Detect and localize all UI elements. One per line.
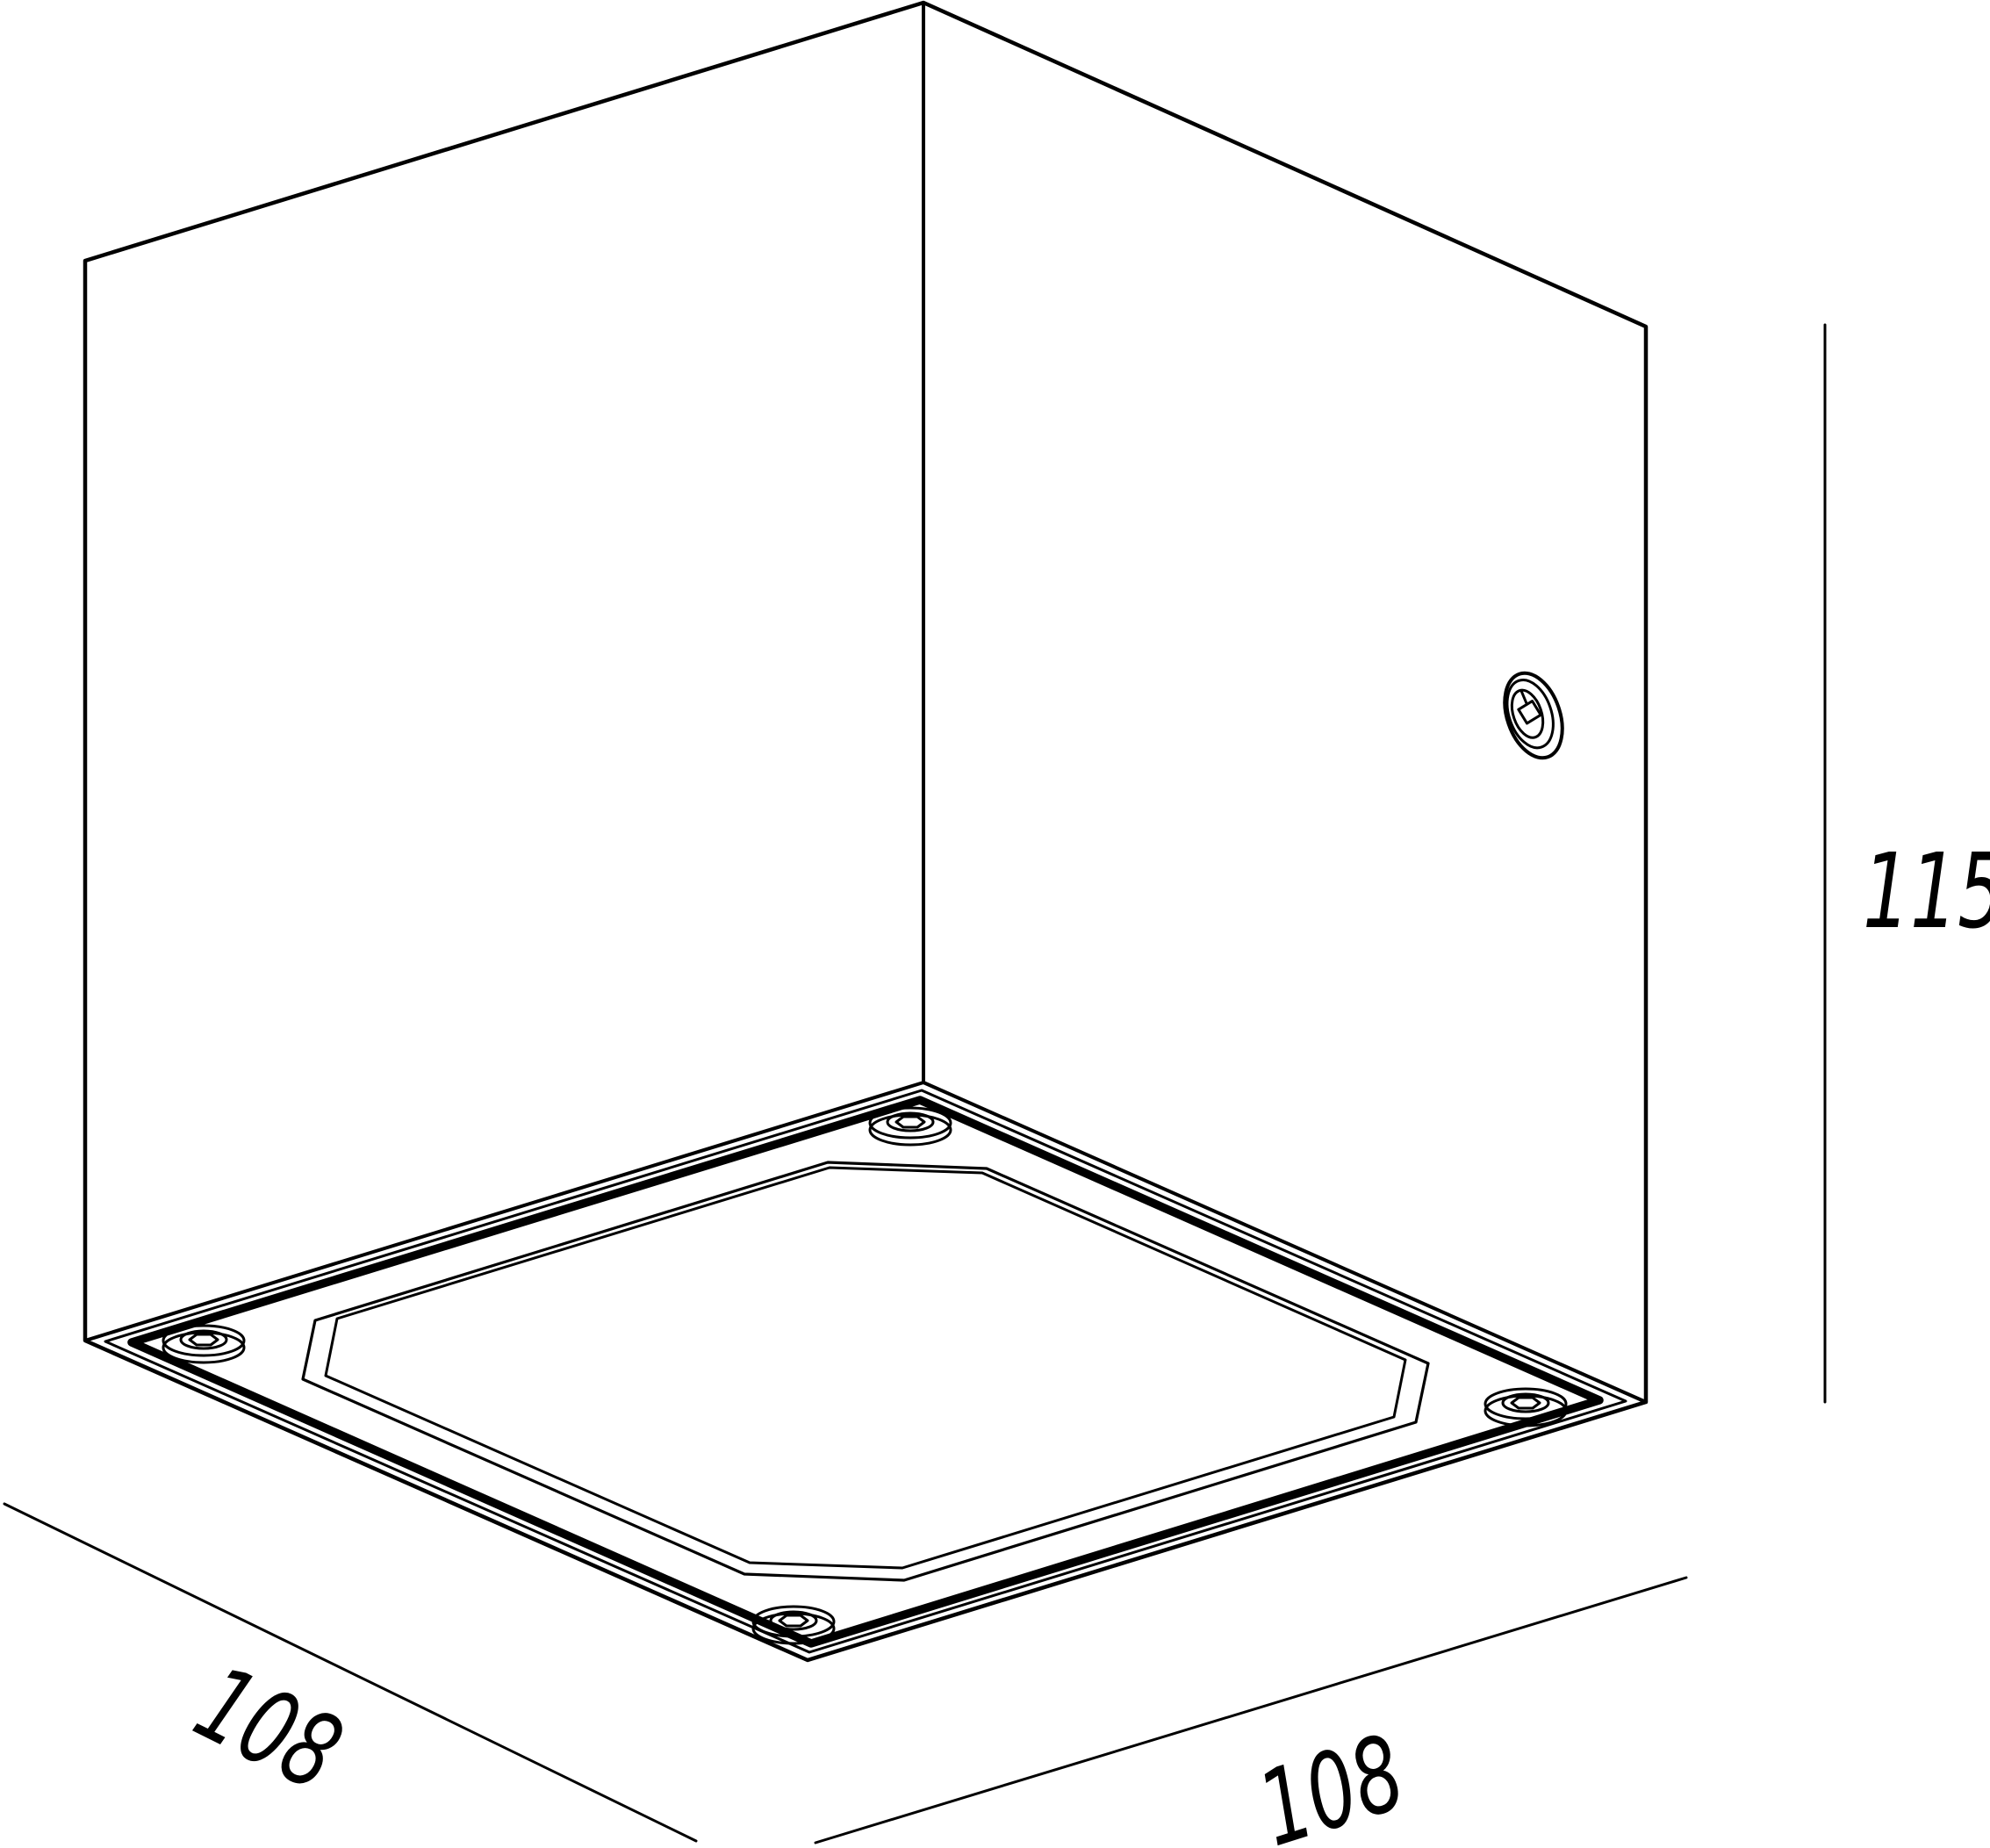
glass-panel-outer xyxy=(303,1162,1428,1580)
dimension-label-depth-left: 108 xyxy=(177,1644,358,1816)
technical-drawing-canvas: 108 108 115 xyxy=(0,0,1990,1848)
isometric-drawing: 108 108 115 xyxy=(0,0,1990,1848)
dimension-label-width-right: 108 xyxy=(1246,1714,1418,1848)
dimension-label-height: 115 xyxy=(1863,832,1990,953)
dimension-line-depth-left xyxy=(4,1504,696,1841)
dimension-label-height-text: 115 xyxy=(1863,832,1990,953)
bezel-groove xyxy=(132,1100,1599,1643)
corner-screw-left xyxy=(163,1326,244,1363)
bottom-face-near-edges xyxy=(85,1082,1646,1402)
corner-screw-front xyxy=(870,1108,951,1145)
dimension-label-depth-left-text: 108 xyxy=(177,1644,358,1816)
cube-outline xyxy=(85,3,1646,1660)
cable-gland xyxy=(1494,665,1572,766)
dimension-label-width-right-text: 108 xyxy=(1246,1714,1418,1848)
